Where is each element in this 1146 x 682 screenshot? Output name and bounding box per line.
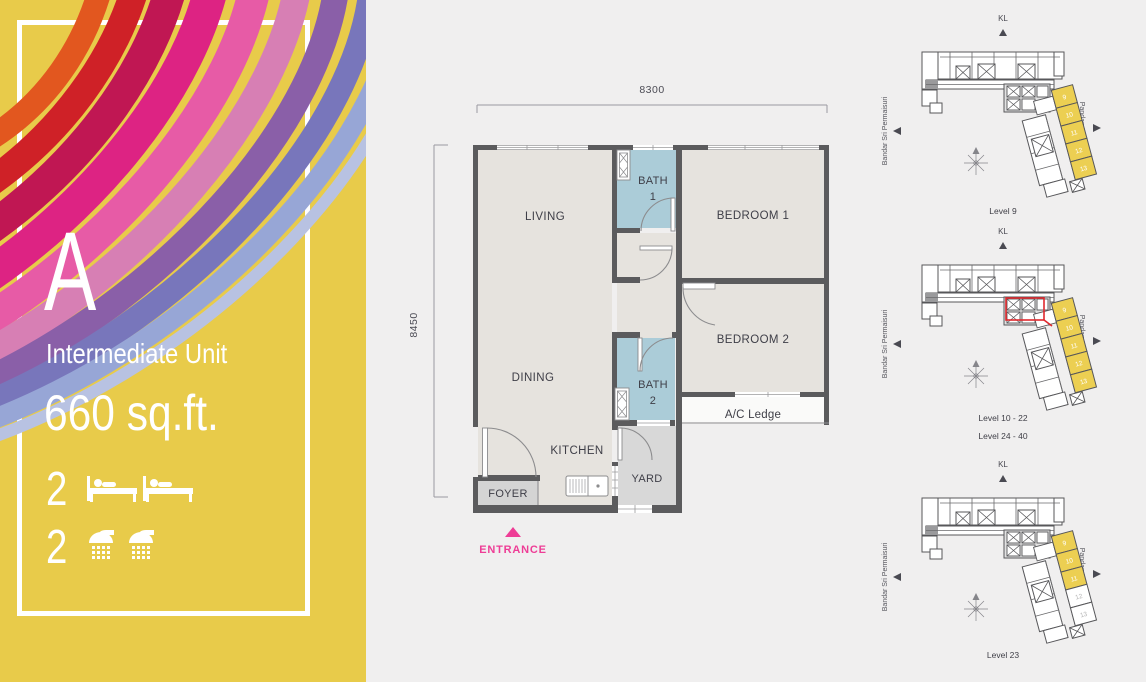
road-arrow-right-icon (1093, 570, 1101, 578)
room-label-ac-ledge: A/C Ledge (725, 409, 781, 421)
room-label-bedroom2: BEDROOM 2 (717, 334, 790, 346)
level-caption-2: Level 24 - 40 (978, 431, 1027, 441)
room-label-dining: DINING (512, 372, 555, 384)
kl-arrow-icon (999, 29, 1007, 36)
room-label-bath1: BATH (638, 175, 668, 187)
room-label-bath2-num: 2 (650, 395, 656, 407)
brochure-page: A Intermediate Unit 660 sq.ft. 2 (0, 0, 1146, 682)
road-arrow-left-icon (893, 127, 901, 135)
floorplan-drawing: 8300 8450 LIVING DINING KITCHEN FOYER YA… (0, 0, 1146, 682)
road-arrow-left-icon (893, 573, 901, 581)
keyplan-level-10-40: KL Bandar Sri Permaisuri Pandan Perdana … (882, 227, 1101, 441)
kl-label: KL (998, 14, 1008, 23)
entrance-label: ENTRANCE (479, 544, 547, 556)
level-caption: Level 10 - 22 (978, 413, 1027, 423)
level-caption: Level 23 (987, 650, 1019, 660)
dim-height: 8450 (408, 312, 420, 337)
road-label-left: Bandar Sri Permaisuri (882, 542, 889, 611)
kl-label: KL (998, 460, 1008, 469)
road-arrow-right-icon (1093, 124, 1101, 132)
room-label-bath2: BATH (638, 379, 668, 391)
kitchen-sink (566, 476, 608, 496)
road-label-left: Bandar Sri Permaisuri (882, 96, 889, 165)
keyplan-level-23: KL Bandar Sri Permaisuri Pandan Perdana … (882, 460, 1101, 660)
dim-width: 8300 (639, 84, 664, 96)
entrance-arrow-icon (505, 527, 521, 537)
room-label-kitchen: KITCHEN (550, 445, 603, 457)
road-arrow-left-icon (893, 340, 901, 348)
road-arrow-right-icon (1093, 337, 1101, 345)
kl-arrow-icon (999, 242, 1007, 249)
room-label-bedroom1: BEDROOM 1 (717, 210, 790, 222)
level-caption: Level 9 (989, 206, 1017, 216)
floorplan: 8300 8450 LIVING DINING KITCHEN FOYER YA… (408, 84, 829, 556)
kl-label: KL (998, 227, 1008, 236)
road-label-left: Bandar Sri Permaisuri (882, 309, 889, 378)
kl-arrow-icon (999, 475, 1007, 482)
room-label-yard: YARD (632, 473, 663, 485)
room-label-foyer: FOYER (488, 488, 527, 500)
room-label-living: LIVING (525, 211, 565, 223)
keyplan-level-9: KL Bandar Sri Permaisuri Pandan Perdana … (882, 14, 1101, 216)
room-label-bath1-num: 1 (650, 191, 656, 203)
